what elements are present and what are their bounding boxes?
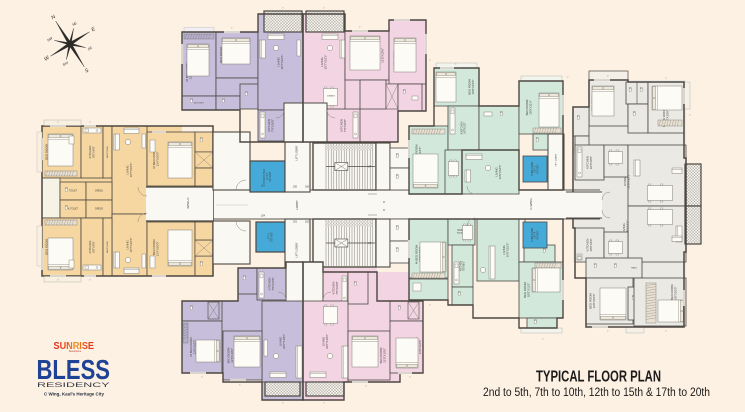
svg-text:20'7"X10'6": 20'7"X10'6" bbox=[325, 334, 329, 349]
svg-text:LIFT LOBBY: LIFT LOBBY bbox=[295, 145, 299, 160]
svg-text:C-WING: C-WING bbox=[529, 198, 533, 210]
svg-text:8'0"X10'0": 8'0"X10'0" bbox=[464, 122, 467, 133]
svg-text:6'6"X8'6": 6'6"X8'6" bbox=[537, 230, 539, 239]
svg-text:18'7"X10'6": 18'7"X10'6" bbox=[129, 163, 133, 178]
svg-text:7'0"X10'0": 7'0"X10'0" bbox=[271, 277, 275, 290]
svg-text:DRESS: DRESS bbox=[95, 209, 103, 211]
svg-text:202: 202 bbox=[305, 221, 310, 224]
svg-text:19'0"X12'1": 19'0"X12'1" bbox=[626, 174, 630, 189]
svg-text:A.TOILET: A.TOILET bbox=[68, 208, 79, 211]
svg-text:12'0"X10'0": 12'0"X10'0" bbox=[380, 48, 384, 63]
svg-text:6'6"X8'6": 6'6"X8'6" bbox=[537, 164, 539, 173]
svg-text:LIFT LOBBY: LIFT LOBBY bbox=[556, 153, 558, 166]
svg-text:12'0"X10'0": 12'0"X10'0" bbox=[673, 287, 677, 302]
svg-text:6'0"X5'6": 6'0"X5'6" bbox=[271, 232, 274, 242]
svg-text:∨: ∨ bbox=[383, 200, 386, 204]
svg-text:WING-C: WING-C bbox=[186, 197, 190, 209]
svg-text:PASS: PASS bbox=[631, 267, 637, 270]
svg-text:12'0"X10'0": 12'0"X10'0" bbox=[418, 340, 422, 355]
svg-text:STRETCHER: STRETCHER bbox=[532, 228, 534, 242]
svg-text:20'7"X10'6": 20'7"X10'6" bbox=[280, 55, 284, 70]
svg-text:12'6"X10'0": 12'6"X10'0" bbox=[155, 242, 159, 257]
svg-text:∧: ∧ bbox=[383, 208, 386, 212]
svg-text:10'0"X8'0": 10'0"X8'0" bbox=[589, 156, 593, 169]
svg-text:LOBBY: LOBBY bbox=[295, 200, 299, 210]
svg-text:12'6"X10'0": 12'6"X10'0" bbox=[155, 152, 159, 167]
svg-text:TOILET: TOILET bbox=[69, 191, 78, 193]
svg-text:8'0"X8'0": 8'0"X8'0" bbox=[91, 146, 95, 158]
svg-text:7'0"X10'0": 7'0"X10'0" bbox=[335, 281, 339, 294]
svg-text:205: 205 bbox=[293, 186, 298, 189]
svg-text:9'0"X8'0": 9'0"X8'0" bbox=[463, 261, 466, 271]
svg-text:20'7"X10'6": 20'7"X10'6" bbox=[323, 55, 327, 70]
svg-text:203: 203 bbox=[261, 185, 266, 188]
svg-text:204: 204 bbox=[261, 215, 266, 218]
svg-text:TYPICAL FLOOR PLAN: TYPICAL FLOOR PLAN bbox=[536, 369, 661, 386]
svg-text:LIFT-4: LIFT-4 bbox=[535, 231, 537, 238]
svg-text:10'0"X8'0": 10'0"X8'0" bbox=[589, 238, 593, 251]
svg-text:206: 206 bbox=[305, 186, 310, 189]
svg-text:A/KITCHEN: A/KITCHEN bbox=[106, 241, 109, 253]
svg-text:7'0"X10'0": 7'0"X10'0" bbox=[270, 119, 274, 132]
svg-text:16'0"X10'6": 16'0"X10'6" bbox=[498, 165, 502, 180]
svg-text:10'0"X11'6": 10'0"X11'6" bbox=[528, 100, 532, 115]
svg-text:STRETCHER: STRETCHER bbox=[532, 162, 534, 176]
svg-text:12'0"X10'0": 12'0"X10'0" bbox=[382, 348, 386, 363]
svg-text:Developers: Developers bbox=[69, 350, 82, 353]
svg-text:A/KITCHEN: A/KITCHEN bbox=[106, 146, 109, 158]
svg-text:10'0"X10'0": 10'0"X10'0" bbox=[471, 80, 475, 95]
svg-text:12'0"X10'0": 12'0"X10'0" bbox=[592, 294, 596, 309]
svg-text:18'7"X10'6": 18'7"X10'6" bbox=[129, 238, 133, 253]
svg-text:2nd to 5th, 7th to 10th, 12th: 2nd to 5th, 7th to 10th, 12th to 15th & … bbox=[483, 385, 710, 399]
svg-text:BLESS: BLESS bbox=[37, 354, 111, 385]
svg-text:C Wing, Kaul's Heritage City: C Wing, Kaul's Heritage City bbox=[44, 391, 104, 396]
svg-text:RESIDENCY: RESIDENCY bbox=[37, 382, 111, 389]
svg-text:201: 201 bbox=[293, 221, 298, 224]
svg-text:LIFT LOBBY: LIFT LOBBY bbox=[295, 242, 299, 257]
svg-text:UP: UP bbox=[368, 242, 372, 245]
svg-text:10'0"X11'6": 10'0"X11'6" bbox=[526, 283, 530, 298]
svg-text:UP: UP bbox=[368, 165, 372, 168]
svg-text:DRESS: DRESS bbox=[95, 191, 103, 193]
svg-text:8'0"X8'0": 8'0"X8'0" bbox=[91, 241, 95, 253]
svg-text:7'0"X10'0": 7'0"X10'0" bbox=[343, 119, 347, 132]
svg-text:12'0"X10'0": 12'0"X10'0" bbox=[230, 348, 234, 363]
svg-text:16'0"X10'6": 16'0"X10'6" bbox=[505, 243, 509, 258]
svg-text:LIFT-3: LIFT-3 bbox=[535, 165, 537, 172]
svg-text:DINING: DINING bbox=[327, 96, 335, 98]
svg-text:6'6"X8'6": 6'6"X8'6" bbox=[269, 171, 272, 181]
svg-text:A.TOILET: A.TOILET bbox=[194, 102, 204, 105]
svg-text:20'7"X10'6": 20'7"X10'6" bbox=[282, 334, 286, 349]
